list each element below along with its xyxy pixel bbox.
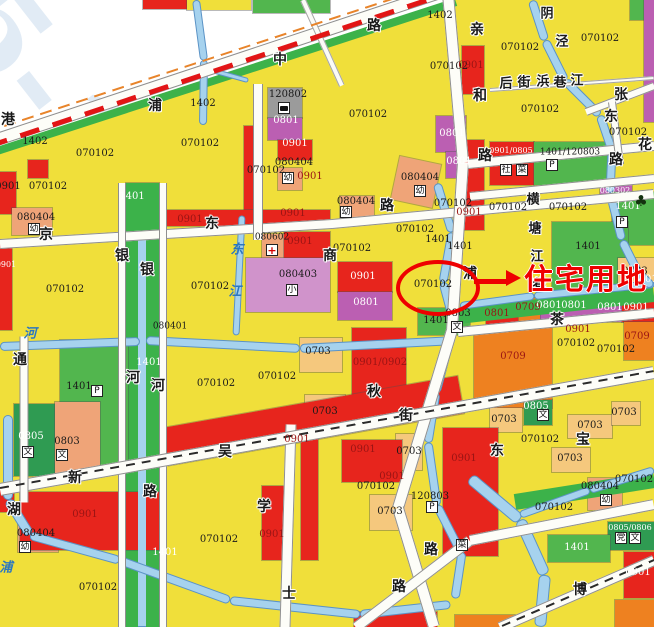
- parcel-code-label: 0709: [515, 303, 540, 313]
- river-name-label: 巷: [553, 77, 566, 90]
- parcel-code-label: 0901: [456, 208, 481, 218]
- parcel-code-label: 080401: [153, 323, 187, 332]
- road-name-label: 浦: [148, 99, 162, 113]
- kindergarten-icon: 幼: [19, 541, 31, 553]
- parcel-code-label: 0801: [439, 129, 464, 139]
- parcel-code-label: 0805/0806: [608, 524, 651, 532]
- parcel-code-label: 0901: [280, 209, 305, 219]
- highlight-ellipse: [396, 260, 480, 316]
- parcel-code-label: 070102: [200, 535, 238, 545]
- river-name-label: 街: [517, 77, 530, 90]
- road-name-label: 东: [490, 444, 504, 458]
- party-icon: 党: [615, 532, 627, 544]
- parcel-code-label: 0703: [577, 421, 602, 431]
- road-name-label: 新: [68, 471, 82, 485]
- annotation-label: 住宅用地: [524, 256, 648, 298]
- road-name-label: 京: [39, 228, 53, 242]
- parcel-code-label: 0901: [565, 325, 590, 335]
- parcel-code-label: 0709: [624, 332, 649, 342]
- road-name-label: 茶: [550, 313, 564, 327]
- kindergarten-icon: 幼: [28, 223, 40, 235]
- road-name-label: 银: [115, 249, 129, 263]
- parcel-code-label: 0703: [611, 408, 636, 418]
- parcel-code-label: 0801: [446, 157, 471, 167]
- parcel-code-label: 070102: [489, 203, 527, 213]
- culture-icon: 文: [451, 321, 463, 333]
- parcel-code-label: 0703: [377, 507, 402, 517]
- parcel-code-label: 0901: [259, 530, 284, 540]
- parcel-code-label: 1402: [427, 11, 452, 21]
- parcel-code-label: 070102: [597, 345, 635, 355]
- road-name-label: 湖: [7, 503, 21, 517]
- parcel-code-label: 070102: [333, 244, 371, 254]
- parcel-code-label: 120802: [269, 90, 307, 100]
- trees-icon: ♣: [633, 193, 649, 209]
- parcel: [253, 0, 330, 13]
- parcel-code-label: 0703: [305, 347, 330, 357]
- river-name-label: 江: [570, 75, 583, 88]
- parcel-code-label: 070102: [549, 203, 587, 213]
- parcel-code-label: 0901: [282, 139, 307, 149]
- river-name-label: 河: [23, 328, 36, 341]
- parcel-code-label: 070102: [521, 435, 559, 445]
- parcel-code-label: 070102: [76, 149, 114, 159]
- parcel-code-label: 0901: [350, 272, 375, 282]
- road-name-label: 学: [257, 500, 271, 514]
- parcel-code-label: 0801: [273, 116, 298, 126]
- culture-icon: 文: [56, 449, 68, 461]
- parcel-code-label: 1402: [190, 99, 215, 109]
- river-name-label: 后: [499, 78, 512, 91]
- parcel-code-label: 0901: [177, 215, 202, 225]
- river-name-label: 浦: [0, 562, 13, 575]
- parcel-code-label: 0801: [597, 303, 622, 313]
- parcel-code-label: 0901: [297, 172, 322, 182]
- parking-icon: P: [546, 159, 558, 171]
- road-name-label: 花: [638, 138, 652, 152]
- parcel-code-label: 070102: [557, 339, 595, 349]
- parcel-code-label: 070102: [521, 105, 559, 115]
- parking-icon: P: [91, 385, 103, 397]
- road-name-label: 路: [143, 485, 157, 499]
- annotation-arrow: [474, 279, 506, 284]
- road-name-label: 亲: [470, 23, 484, 37]
- parcel-code-label: 070102: [46, 285, 84, 295]
- parcel-code-label: 0901: [625, 568, 650, 578]
- parcel-code-label: 0901: [379, 472, 404, 482]
- road-name-label: 通: [13, 353, 27, 367]
- kindergarten-icon: 幼: [600, 494, 612, 506]
- parcel: [143, 0, 187, 9]
- culture-icon: 文: [22, 446, 34, 458]
- parcel-code-label: 1401/120803: [540, 149, 600, 158]
- parcel-code-label: 0901: [0, 182, 21, 192]
- parcel-code-label: 1402: [22, 137, 47, 147]
- road-name-label: 张: [614, 88, 628, 102]
- parcel-code-label: 1401: [136, 358, 161, 368]
- parcel-code-label: 0703: [491, 415, 516, 425]
- parcel-code-label: 070102: [79, 583, 117, 593]
- road-name-label: 河: [151, 379, 165, 393]
- parcel: [615, 600, 654, 627]
- parcel-code-label: 0703: [557, 454, 582, 464]
- parcel-code-label: 080404: [581, 482, 619, 492]
- parcel-code-label: 080404: [17, 529, 55, 539]
- parcel-code-label: 0803: [54, 437, 79, 447]
- parcel-code-label: 070102: [615, 475, 653, 485]
- river-name-label: 阴: [540, 8, 553, 21]
- road-name-label: 路: [478, 149, 492, 163]
- parcel-code-label: 0901: [0, 261, 16, 269]
- road-name-label: 东: [604, 110, 618, 124]
- parcel-code-label: 080404: [275, 158, 313, 168]
- parcel-code-label: 0901: [458, 61, 483, 71]
- kindergarten-icon: 幼: [282, 172, 294, 184]
- parcel-code-label: 0801: [484, 309, 509, 319]
- road-name-label: 河: [126, 371, 140, 385]
- parcel-code-label: 070102: [581, 34, 619, 44]
- road-name-label: 和: [473, 89, 487, 103]
- hospital-icon: +: [266, 244, 278, 256]
- parcel-code-label: 0901: [451, 454, 476, 464]
- primary-school-icon: 小: [286, 284, 298, 296]
- river-name-label: 江: [228, 286, 241, 299]
- parcel-code-label: 070102: [181, 139, 219, 149]
- parcel-code-label: 0901: [623, 303, 648, 313]
- market-icon: 菜: [516, 164, 528, 176]
- parcel-code-label: 070102: [434, 199, 472, 209]
- parcel-code-label: 0901: [287, 237, 312, 247]
- parcel-code-label: 0901: [350, 445, 375, 455]
- parcel-code-label: 0901: [284, 435, 309, 445]
- parcel-code-label: 070102: [349, 110, 387, 120]
- parcel-code-label: 0805: [18, 432, 43, 442]
- parcel-code-label: 070102: [258, 372, 296, 382]
- parcel-code-label: 0901/0902: [353, 358, 407, 368]
- road-name-label: 中: [273, 53, 287, 67]
- parcel-code-label: 1401: [66, 382, 91, 392]
- kindergarten-icon: 幼: [414, 185, 426, 197]
- parcel-code-label: 080403: [279, 270, 317, 280]
- parcel-code-label: 0709: [500, 352, 525, 362]
- road-name-label: 路: [392, 580, 406, 594]
- road-name-label: 博: [573, 583, 587, 597]
- parcel-code-label: 070102: [191, 282, 229, 292]
- parcel-code-label: 0703: [396, 447, 421, 457]
- parcel-code-label: 0801: [353, 298, 378, 308]
- road-name-label: 吴: [218, 445, 232, 459]
- parcel-code-label: 070102: [29, 182, 67, 192]
- kindergarten-icon: 幼: [340, 206, 352, 218]
- market-icon: 菜: [456, 539, 468, 551]
- road-segment: [253, 84, 263, 240]
- culture-icon: 文: [629, 532, 641, 544]
- river-name-label: 泾: [555, 36, 568, 49]
- parcel: [0, 240, 12, 330]
- parcel-code-label: 0801: [561, 301, 586, 311]
- parcel-code-label: 070102: [197, 379, 235, 389]
- parcel-code-label: 080404: [401, 173, 439, 183]
- river-name-label: 横: [526, 194, 539, 207]
- zoning-map: 5-15 07010207010209010701020701020701020…: [0, 0, 654, 627]
- community-icon: 社: [500, 164, 512, 176]
- parcel: [28, 160, 48, 178]
- river-name-label: 塘: [528, 223, 541, 236]
- annotation-arrow-head: [506, 270, 521, 286]
- bus-icon: [278, 102, 290, 114]
- river-name-label: 东: [230, 244, 243, 257]
- river-name-label: 浜: [536, 76, 549, 89]
- parcel-code-label: 0703: [312, 407, 337, 417]
- road-name-label: 路: [367, 19, 381, 33]
- parcel: [644, 0, 654, 122]
- parcel: [301, 432, 318, 560]
- parking-icon: P: [426, 501, 438, 513]
- culture-icon: 文: [537, 409, 549, 421]
- parcel-code-label: 080302: [600, 187, 631, 195]
- parcel-code-label: 070102: [357, 482, 395, 492]
- parcel-code-label: 070102: [501, 43, 539, 53]
- parcel-code-label: 070102: [535, 503, 573, 513]
- road-name-label: 路: [380, 199, 394, 213]
- road-name-label: 秋: [367, 385, 381, 399]
- road-name-label: 宝: [576, 433, 590, 447]
- parcel-code-label: 0901/0805: [489, 147, 532, 155]
- road-name-label: 路: [609, 153, 623, 167]
- parcel-code-label: 1401: [564, 543, 589, 553]
- road-name-label: 路: [424, 543, 438, 557]
- road-segment: [159, 183, 167, 627]
- parking-icon: P: [616, 216, 628, 228]
- parcel-code-label: 1401: [152, 548, 177, 558]
- parcel-code-label: 1401: [575, 242, 600, 252]
- parcel-code-label: 1401: [447, 242, 472, 252]
- road-name-label: 港: [1, 113, 15, 127]
- road-name-label: 东: [205, 217, 219, 231]
- parcel-code-label: 0901: [72, 510, 97, 520]
- parcel-code-label: 1401: [119, 192, 144, 202]
- parcel-code-label: 080404: [17, 213, 55, 223]
- parcel-code-label: 080602: [255, 234, 289, 243]
- road-name-label: 士: [282, 587, 296, 601]
- road-name-label: 银: [140, 263, 154, 277]
- road-name-label: 商: [323, 249, 337, 263]
- road-name-label: 街: [399, 409, 413, 423]
